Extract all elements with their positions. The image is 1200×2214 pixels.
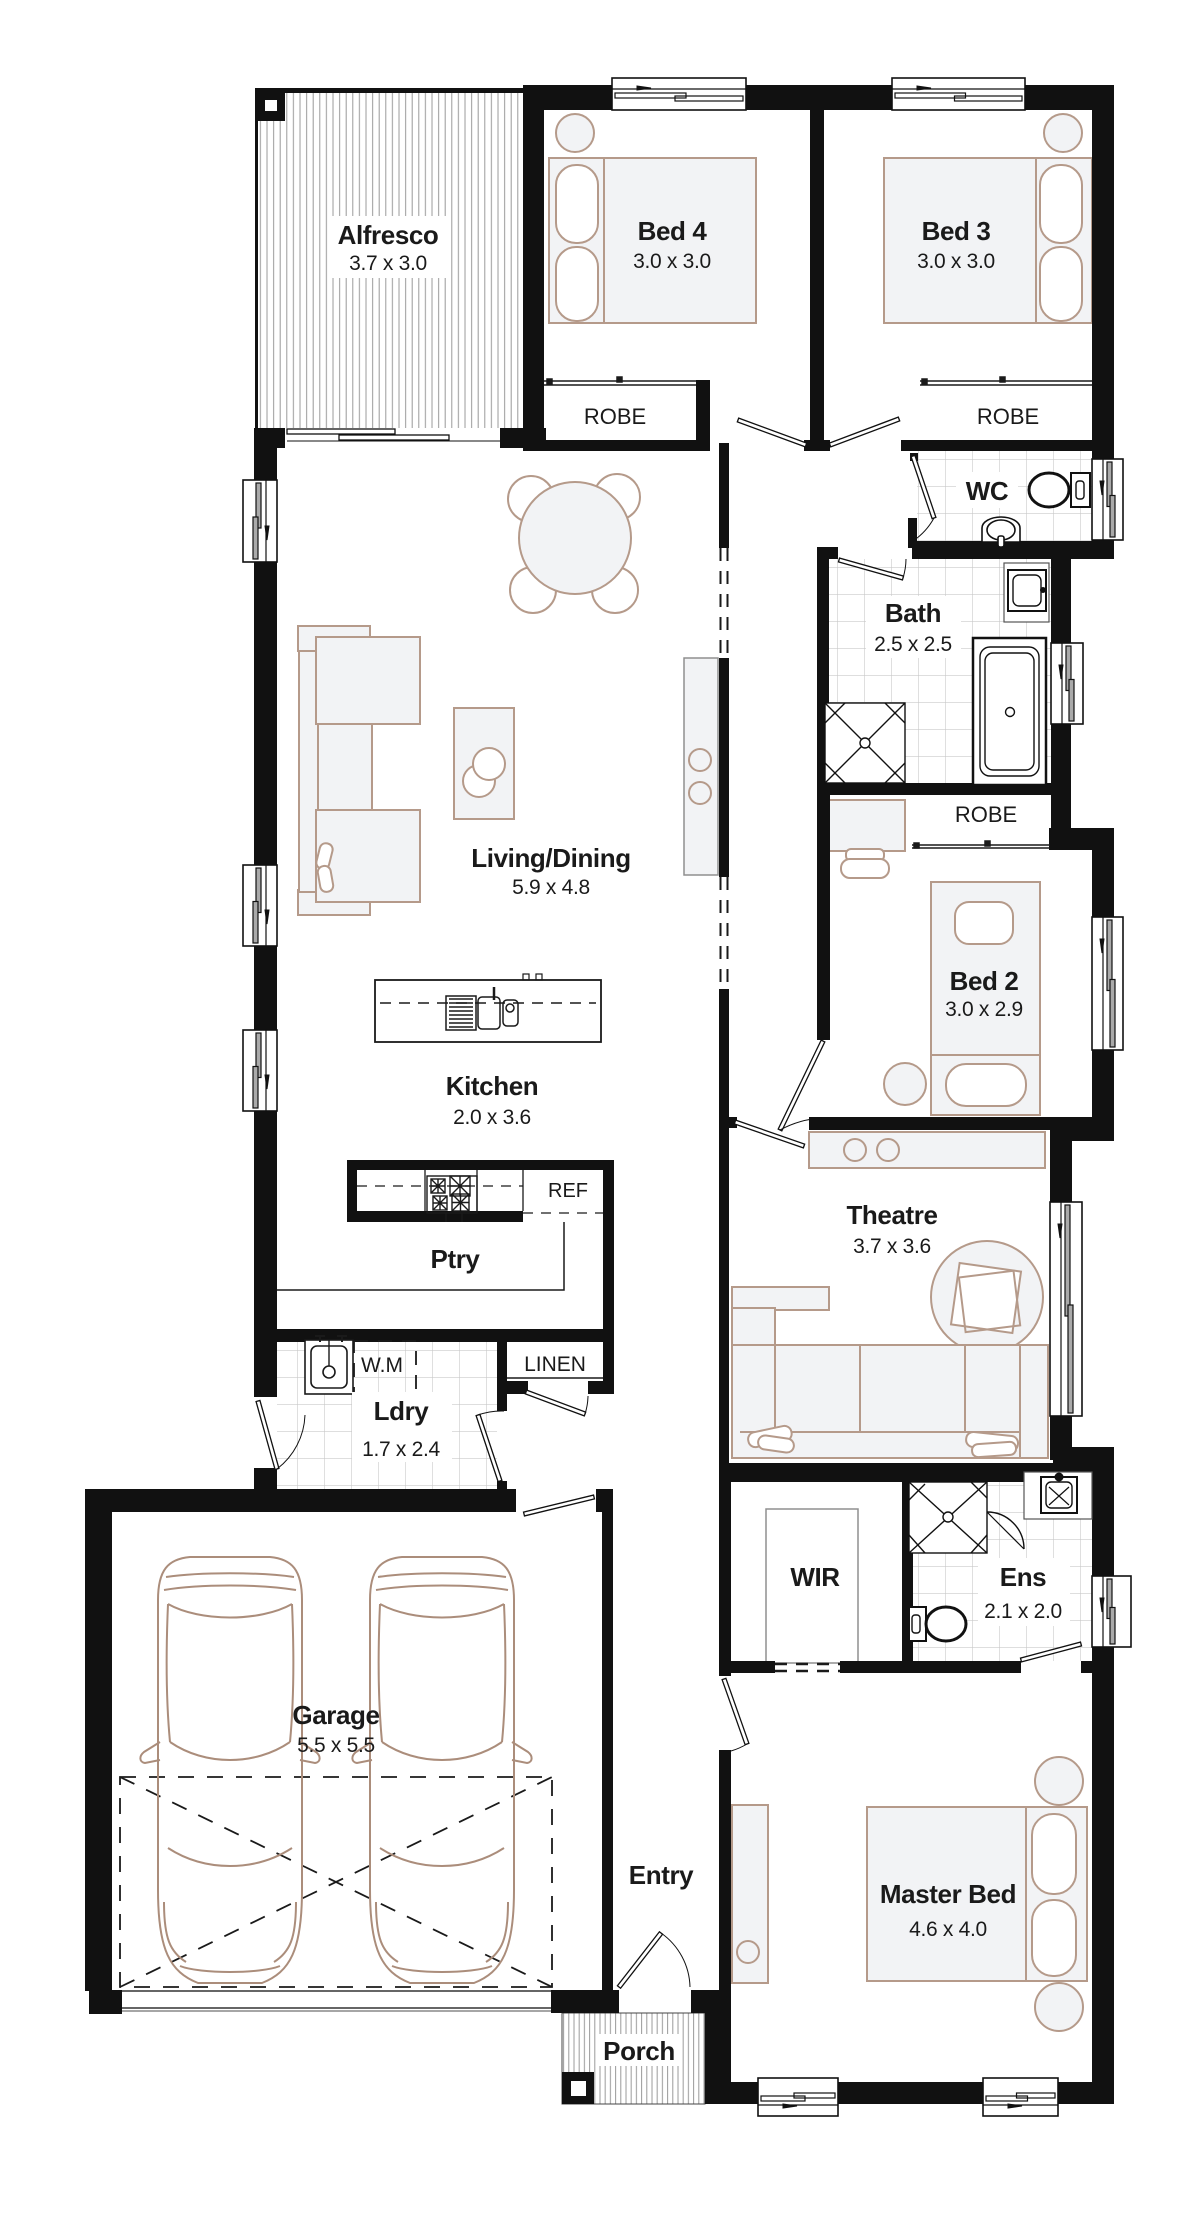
svg-text:Alfresco: Alfresco xyxy=(338,220,439,250)
svg-text:3.7 x 3.0: 3.7 x 3.0 xyxy=(349,252,427,275)
svg-text:3.0 x 3.0: 3.0 x 3.0 xyxy=(633,250,711,273)
svg-text:Bed 4: Bed 4 xyxy=(638,216,708,246)
svg-text:Living/Dining: Living/Dining xyxy=(471,843,630,873)
svg-text:5.5 x 5.5: 5.5 x 5.5 xyxy=(297,1734,375,1757)
svg-text:Ens: Ens xyxy=(1000,1562,1046,1592)
svg-text:3.7 x 3.6: 3.7 x 3.6 xyxy=(853,1235,931,1258)
svg-text:Entry: Entry xyxy=(629,1860,694,1890)
svg-text:W.M: W.M xyxy=(361,1354,403,1377)
svg-text:3.0 x 2.9: 3.0 x 2.9 xyxy=(945,998,1023,1021)
svg-text:REF: REF xyxy=(548,1180,588,1202)
svg-text:ROBE: ROBE xyxy=(977,404,1039,429)
svg-text:Ldry: Ldry xyxy=(374,1396,430,1426)
svg-text:Ptry: Ptry xyxy=(431,1244,481,1274)
svg-text:Master Bed: Master Bed xyxy=(880,1879,1016,1909)
svg-text:2.1 x 2.0: 2.1 x 2.0 xyxy=(984,1600,1062,1623)
svg-text:WC: WC xyxy=(966,476,1009,506)
svg-text:2.5 x 2.5: 2.5 x 2.5 xyxy=(874,633,952,656)
svg-text:2.0 x 3.6: 2.0 x 3.6 xyxy=(453,1106,531,1129)
svg-text:Theatre: Theatre xyxy=(846,1200,937,1230)
svg-text:Bath: Bath xyxy=(885,598,941,628)
svg-text:Kitchen: Kitchen xyxy=(446,1071,539,1101)
svg-text:3.0 x 3.0: 3.0 x 3.0 xyxy=(917,250,995,273)
svg-text:4.6 x 4.0: 4.6 x 4.0 xyxy=(909,1918,987,1941)
svg-text:Bed 3: Bed 3 xyxy=(922,216,991,246)
svg-text:Porch: Porch xyxy=(603,2036,675,2066)
svg-text:ROBE: ROBE xyxy=(955,802,1017,827)
svg-text:Bed 2: Bed 2 xyxy=(950,966,1019,996)
svg-text:ROBE: ROBE xyxy=(584,404,646,429)
svg-text:1.7 x 2.4: 1.7 x 2.4 xyxy=(362,1438,440,1461)
svg-text:WIR: WIR xyxy=(790,1562,840,1592)
svg-text:LINEN: LINEN xyxy=(524,1353,586,1376)
svg-text:Garage: Garage xyxy=(292,1700,379,1730)
svg-text:5.9 x 4.8: 5.9 x 4.8 xyxy=(512,876,590,899)
